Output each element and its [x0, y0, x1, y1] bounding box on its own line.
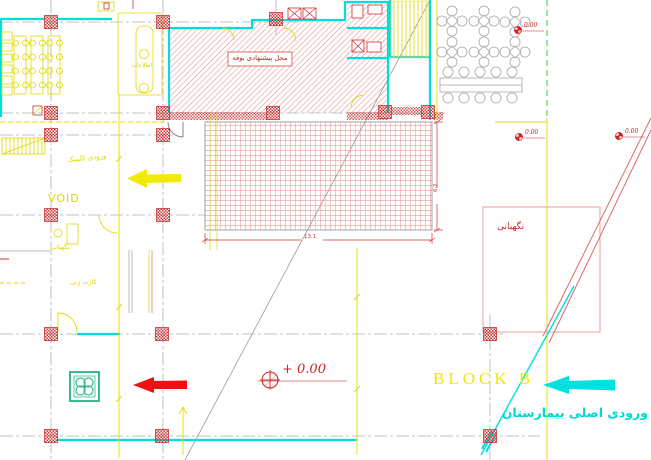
block-b-label: BLOCK B	[433, 370, 534, 387]
clinic-entrance-arrow	[127, 169, 181, 188]
spot-elevation-text: 0.00	[524, 23, 537, 29]
planter-box	[70, 372, 99, 401]
information-desk	[118, 13, 162, 95]
stair-left	[2, 138, 45, 154]
terrace-depth-dim: 6.2	[434, 183, 440, 192]
main-entrance-label: ورودی اصلی بیمارستان	[508, 407, 648, 420]
guard-post-furniture	[54, 224, 78, 244]
stair-band	[391, 1, 428, 57]
waiting-room-furniture	[2, 32, 63, 95]
void-label: VOID	[48, 193, 80, 204]
spot-elevation-text: 0.00	[525, 130, 538, 136]
floor-plan-canvas: اطلاعات محل پیشنهادی بوفه ورودی کلینیک V…	[0, 0, 651, 460]
buffet-label: محل پیشنهادی بوفه	[229, 55, 291, 62]
main-entrance-arrow	[543, 376, 615, 394]
card-punch-label: کارت زنی	[70, 279, 97, 286]
main-elevation-text: + 0.00	[282, 363, 326, 376]
information-label: اطلاعات	[131, 63, 152, 69]
elevation-markers-spot	[515, 27, 646, 141]
plan-linework	[0, 0, 651, 460]
access-road-lines	[543, 118, 651, 343]
staff-entrance-arrow	[133, 377, 187, 393]
guard-post-label: نگهبانی	[50, 244, 70, 251]
guard-room-label: نگهبانی	[497, 223, 524, 232]
dining-tables	[437, 6, 530, 103]
terrace-width-dim: 13.1	[304, 235, 316, 241]
terrace-tiled-deck	[205, 122, 432, 230]
spot-elevation-text: 0.00	[625, 129, 638, 135]
